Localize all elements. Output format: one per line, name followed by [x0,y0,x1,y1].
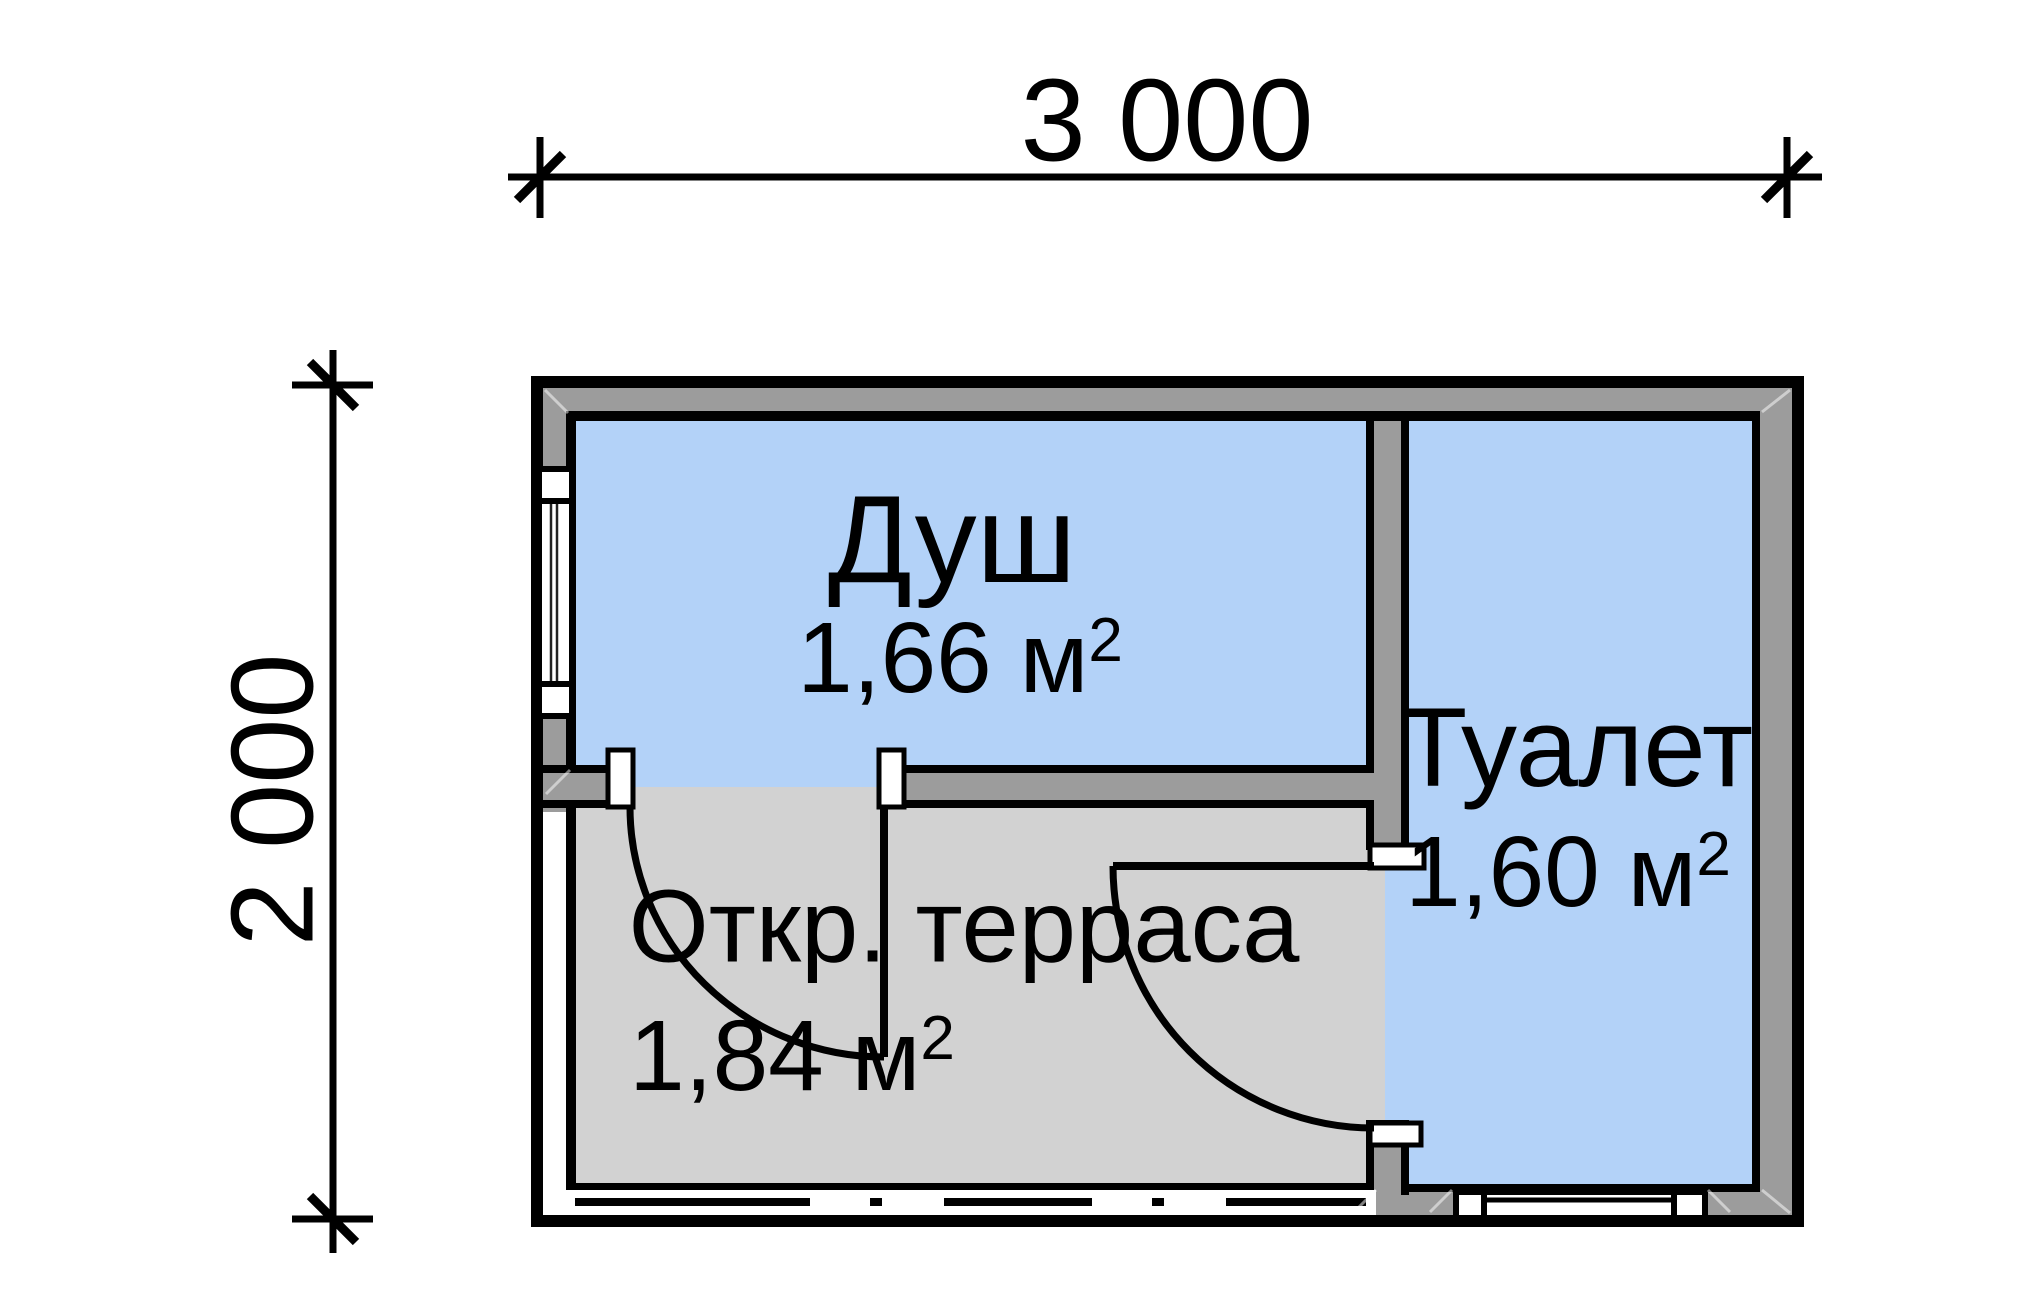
partition-wall-right-segment [903,773,1374,800]
left-window [539,469,572,716]
toilet-room-label: Туалет [1399,692,1753,804]
toilet-room-area: 1,60 м2 [1405,822,1731,922]
toilet-window [1456,1192,1705,1218]
toilet-wall-lower-segment [1374,1145,1401,1215]
height-dimension-label: 2 000 [214,654,331,947]
toilet-room-area-superscript: 2 [1696,820,1730,889]
toilet-door-jamb-bottom [1370,1123,1421,1145]
terrace-left-open-edge [543,812,566,1190]
shower-door-jamb-left [608,750,633,807]
terrace-label: Откр. терраса [629,875,1300,978]
toilet-room-area-value: 1,60 м [1405,816,1696,928]
floor-plan-sheet: 3 000 2 000 Душ 1,66 м2 Туалет 1,60 м2 О… [0,0,2033,1308]
terrace-floor [576,787,1385,1183]
width-dimension-label: 3 000 [1021,62,1314,179]
terrace-area-value: 1,84 м [629,1000,920,1112]
shower-room-area-value: 1,66 м [797,602,1088,714]
shower-room-area: 1,66 м2 [797,608,1123,708]
terrace-area-superscript: 2 [920,1004,954,1073]
terrace-area: 1,84 м2 [629,1006,955,1106]
shower-room-area-superscript: 2 [1088,606,1122,675]
toilet-wall-upper-segment [1374,421,1401,845]
shower-room-label: Душ [828,478,1076,602]
shower-door-jamb-right [879,750,904,807]
